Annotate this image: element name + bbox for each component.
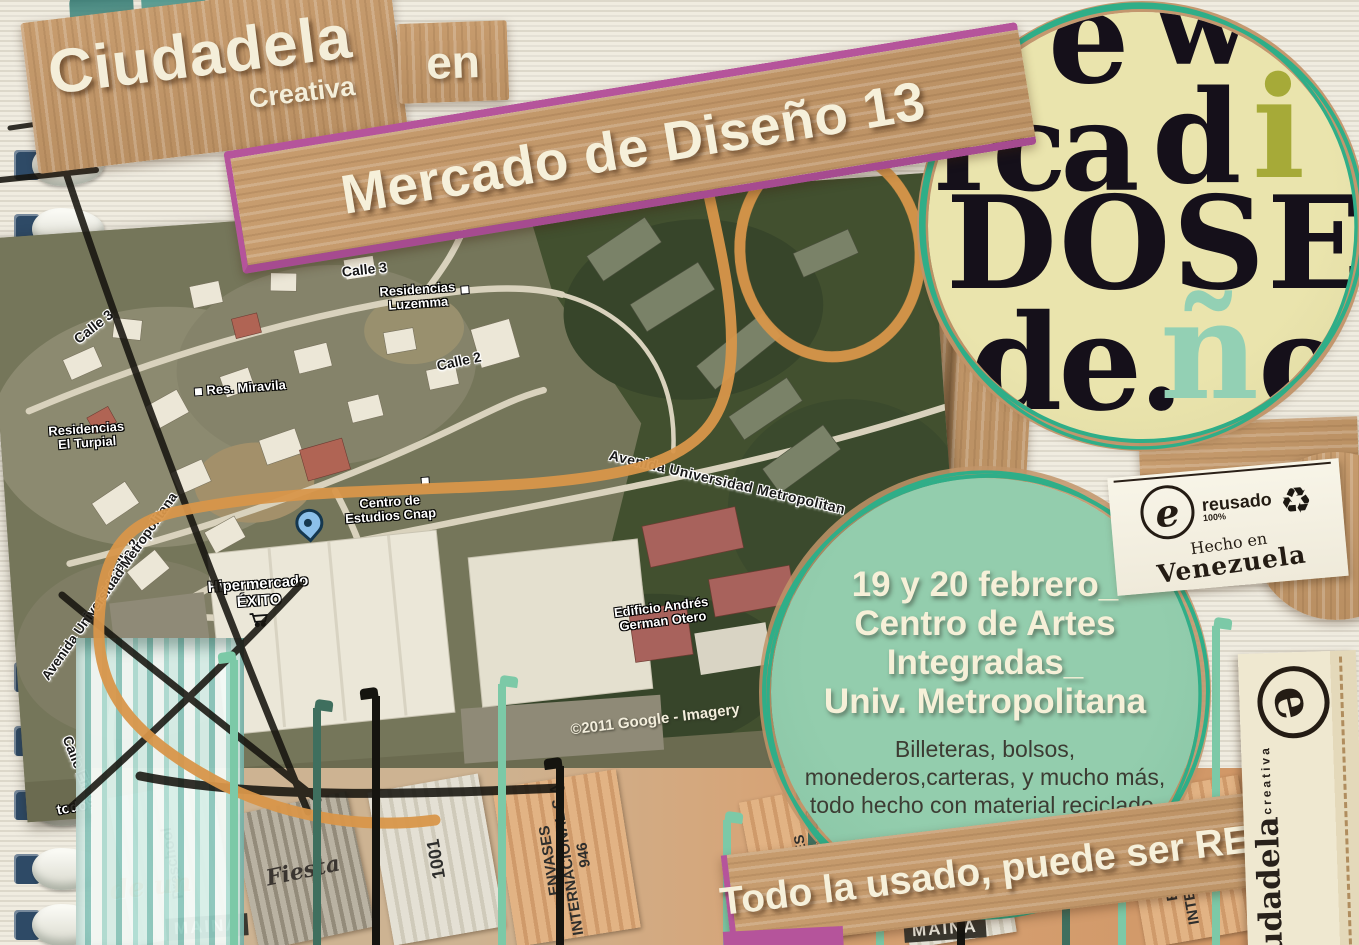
- event-venue-line2: Integradas_: [887, 643, 1083, 682]
- logo-letter: ñ: [1160, 294, 1259, 410]
- tag-title: Ciudadela: [1249, 816, 1291, 945]
- logo-letter: o: [1258, 308, 1346, 420]
- e-logo-icon: e: [1138, 483, 1197, 542]
- logo-letter: de.: [970, 308, 1180, 420]
- event-venue-line3: Univ. Metropolitana: [824, 682, 1146, 721]
- stitch-line: [1339, 657, 1352, 945]
- event-description: Billeteras, bolsos, monederos,carteras, …: [802, 735, 1168, 819]
- reusado-stamp: e reusado 100% ♻ Hecho en Venezuela: [1107, 458, 1348, 596]
- e-logo-icon: e: [1251, 660, 1336, 745]
- connector-text: en: [425, 34, 481, 90]
- ciudadela-side-tag: e Ciudadela creativa: [1238, 650, 1359, 945]
- connector-card: en: [397, 20, 510, 104]
- event-venue-line1: Centro de Artes: [854, 604, 1115, 643]
- stamp-reusado-text: reusado: [1201, 490, 1272, 514]
- recycle-icon: ♻: [1278, 482, 1313, 521]
- event-dates: 19 y 20 febrero_: [852, 565, 1119, 604]
- event-poster: Calle 3 Calle 3 ResidenciasLuzemma Res. …: [0, 0, 1359, 945]
- stamp-100-text: 100%: [1203, 512, 1227, 523]
- tag-subtitle: creativa: [1258, 745, 1274, 815]
- logo-letter: DOSE: [946, 190, 1356, 299]
